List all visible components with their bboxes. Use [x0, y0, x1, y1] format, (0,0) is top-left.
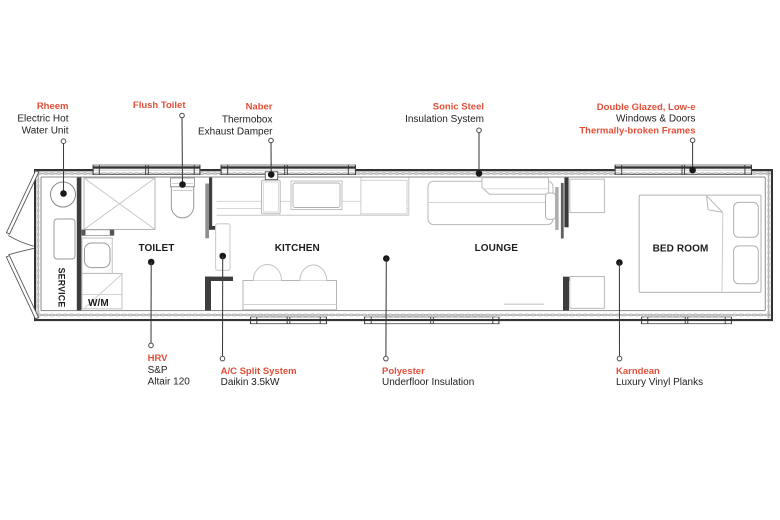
svg-text:Double Glazed, Low-e: Double Glazed, Low-e	[597, 102, 696, 113]
svg-text:Flush Toilet: Flush Toilet	[133, 100, 186, 111]
svg-text:Electric Hot: Electric Hot	[17, 113, 68, 124]
svg-text:W/M: W/M	[88, 298, 109, 309]
svg-text:Sonic Steel: Sonic Steel	[433, 102, 484, 113]
svg-text:Thermally-broken Frames: Thermally-broken Frames	[579, 126, 695, 137]
svg-text:Exhaust Damper: Exhaust Damper	[198, 126, 273, 137]
svg-text:A/C Split System: A/C Split System	[221, 366, 297, 377]
svg-text:LOUNGE: LOUNGE	[475, 243, 519, 254]
svg-text:Polyester: Polyester	[382, 366, 425, 377]
svg-text:Insulation System: Insulation System	[405, 114, 484, 125]
svg-text:Rheem: Rheem	[37, 101, 69, 112]
svg-text:Daikin 3.5kW: Daikin 3.5kW	[221, 377, 280, 388]
svg-text:BED ROOM: BED ROOM	[653, 243, 709, 254]
svg-text:TOILET: TOILET	[139, 243, 175, 254]
svg-text:Altair 120: Altair 120	[148, 376, 191, 387]
svg-text:Thermobox: Thermobox	[222, 114, 273, 125]
svg-text:SERVICE: SERVICE	[57, 268, 67, 308]
svg-text:Naber: Naber	[246, 101, 273, 112]
svg-text:HRV: HRV	[148, 353, 169, 364]
svg-text:KITCHEN: KITCHEN	[275, 243, 320, 254]
svg-text:Water Unit: Water Unit	[22, 125, 69, 136]
svg-text:Windows & Doors: Windows & Doors	[616, 114, 695, 125]
svg-text:Karndean: Karndean	[616, 366, 660, 377]
svg-text:Underfloor Insulation: Underfloor Insulation	[382, 377, 474, 388]
svg-text:Luxury Vinyl Planks: Luxury Vinyl Planks	[616, 377, 703, 388]
svg-text:S&P: S&P	[148, 365, 168, 376]
